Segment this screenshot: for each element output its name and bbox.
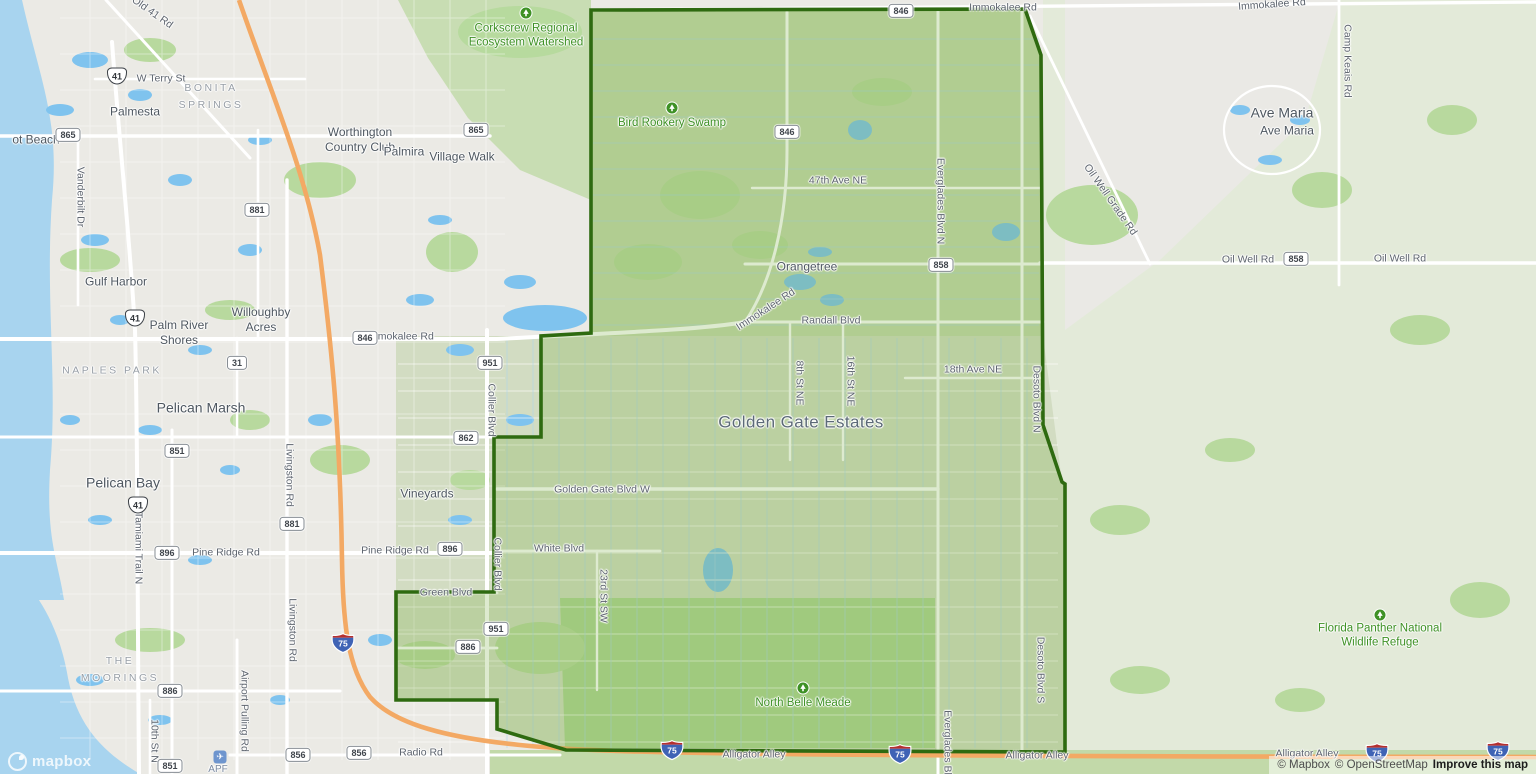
road-label: Immokalee Rd xyxy=(969,1,1037,14)
poi-label: North Belle Meade xyxy=(755,696,850,710)
road-label: 18th Ave NE xyxy=(944,363,1002,376)
svg-text:75: 75 xyxy=(895,750,905,760)
route-shield: 886 xyxy=(455,640,480,654)
road-label: Radio Rd xyxy=(399,746,443,759)
route-shield: 856 xyxy=(285,748,310,762)
improve-this-map-link[interactable]: Improve this map xyxy=(1433,759,1528,771)
place-label: Village Walk xyxy=(429,150,494,165)
svg-text:75: 75 xyxy=(1493,747,1503,757)
road-label: Desoto Blvd S xyxy=(1033,637,1046,704)
route-shield: 846 xyxy=(774,125,799,139)
mapbox-logo-text: mapbox xyxy=(32,753,91,770)
route-shield: 851 xyxy=(157,759,182,773)
road-label: Everglades Blvd N xyxy=(933,158,946,244)
park-icon xyxy=(520,7,533,20)
road-label: 10th St N xyxy=(147,719,160,763)
place-label: BONITA SPRINGS xyxy=(179,80,244,114)
route-shield: 896 xyxy=(154,546,179,560)
road-label: Pine Ridge Rd xyxy=(361,544,429,557)
road-label: 16th St NE xyxy=(843,356,856,407)
road-label: 23rd St SW xyxy=(596,569,609,623)
road-label: 8th St NE xyxy=(792,361,805,406)
road-label: Oil Well Rd xyxy=(1374,252,1426,265)
route-shield: 31 xyxy=(227,356,247,370)
route-shield: 896 xyxy=(437,542,462,556)
place-label: Pelican Bay xyxy=(86,474,160,492)
poi-label: Bird Rookery Swamp xyxy=(618,116,726,130)
park-icon xyxy=(797,682,810,695)
place-label: Ave Maria xyxy=(1260,124,1314,139)
route-shield: 862 xyxy=(453,431,478,445)
airplane-icon: ✈ xyxy=(214,751,227,764)
interstate-75-shield: 75 xyxy=(660,740,684,761)
route-shield: 881 xyxy=(279,517,304,531)
road-label: Tamiami Trail N xyxy=(131,512,144,584)
route-shield: 881 xyxy=(244,203,269,217)
place-label: Ave Maria xyxy=(1251,104,1314,122)
route-shield: 851 xyxy=(164,444,189,458)
road-label: Collier Blvd xyxy=(490,537,503,590)
road-label: Old 41 Rd xyxy=(129,0,175,32)
map-canvas[interactable]: PalmestaBONITA SPRINGSot BeachGulf Harbo… xyxy=(0,0,1536,774)
road-label: Alligator Alley xyxy=(1005,749,1068,762)
poi-label: Florida Panther National Wildlife Refuge xyxy=(1318,622,1442,651)
place-label: Palmira xyxy=(384,145,425,160)
route-shield: 858 xyxy=(1283,252,1308,266)
attribution-osm-link[interactable]: © OpenStreetMap xyxy=(1335,759,1428,771)
map-labels-layer: PalmestaBONITA SPRINGSot BeachGulf Harbo… xyxy=(0,0,1536,774)
place-label: Palmesta xyxy=(110,105,160,120)
interstate-75-shield: 75 xyxy=(331,633,355,654)
route-shield: 846 xyxy=(888,4,913,18)
place-label: Pelican Marsh xyxy=(157,399,246,417)
road-label: Immokalee Rd xyxy=(734,286,798,334)
svg-text:75: 75 xyxy=(338,639,348,649)
attribution-bar: © Mapbox © OpenStreetMap Improve this ma… xyxy=(1269,756,1536,774)
mapbox-logo[interactable]: mapbox xyxy=(8,752,91,771)
place-label: ot Beach xyxy=(12,133,59,148)
park-icon xyxy=(666,102,679,115)
route-shield: 951 xyxy=(483,622,508,636)
road-label: 47th Ave NE xyxy=(809,174,867,187)
road-label: Desoto Blvd N xyxy=(1029,365,1042,432)
road-label: Livingston Rd xyxy=(285,598,298,662)
road-label: Camp Keais Rd xyxy=(1340,24,1353,98)
road-label: Airport Pulling Rd xyxy=(237,670,250,752)
airport-code-label: APF xyxy=(208,764,227,774)
road-label: White Blvd xyxy=(534,542,584,555)
place-label: Willoughby Acres xyxy=(232,305,291,335)
road-label: Vanderbilt Dr xyxy=(73,167,86,228)
route-shield: 865 xyxy=(463,123,488,137)
road-label: Pine Ridge Rd xyxy=(192,546,260,559)
road-label: Oil Well Grade Rd xyxy=(1080,162,1139,239)
road-label: Green Blvd xyxy=(420,586,473,599)
route-shield: 856 xyxy=(346,746,371,760)
svg-text:75: 75 xyxy=(667,746,677,756)
place-label: Vineyards xyxy=(400,487,453,502)
route-shield: 951 xyxy=(477,356,502,370)
route-shield: 846 xyxy=(352,331,377,345)
road-label: Oil Well Rd xyxy=(1222,253,1274,266)
road-label: Randall Blvd xyxy=(802,314,861,327)
route-shield: 886 xyxy=(157,684,182,698)
road-label: Everglades Blvd xyxy=(940,710,953,774)
place-label: Orangetree xyxy=(777,260,838,275)
road-label: Livingston Rd xyxy=(282,443,295,507)
us-route-shield: 41 xyxy=(128,497,148,514)
road-label: Golden Gate Blvd W xyxy=(554,483,650,496)
place-label: Palm River Shores xyxy=(150,318,209,348)
road-label: Alligator Alley xyxy=(722,748,785,761)
route-shield: 858 xyxy=(928,258,953,272)
us-route-shield: 41 xyxy=(107,68,127,85)
road-label: Collier Blvd xyxy=(484,383,497,436)
mapbox-logo-icon xyxy=(8,752,27,771)
poi-label: Corkscrew Regional Ecosystem Watershed xyxy=(469,22,584,51)
place-label: Gulf Harbor xyxy=(85,275,147,290)
us-route-shield: 41 xyxy=(125,310,145,327)
park-icon xyxy=(1374,609,1387,622)
route-shield: 865 xyxy=(55,128,80,142)
attribution-mapbox-link[interactable]: © Mapbox xyxy=(1277,759,1330,771)
interstate-75-shield: 75 xyxy=(888,744,912,765)
place-label: NAPLES PARK xyxy=(62,363,162,380)
road-label: W Terry St xyxy=(137,72,186,85)
place-label: Golden Gate Estates xyxy=(718,411,883,432)
road-label: Immokalee Rd xyxy=(1238,0,1306,14)
place-label: THE MOORINGS xyxy=(81,653,159,687)
